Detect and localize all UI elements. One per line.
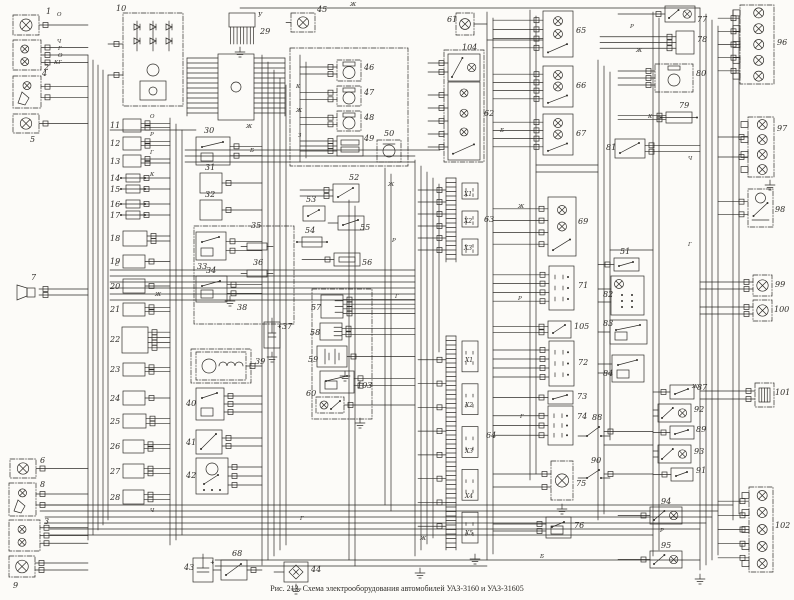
- component-67: [493, 114, 573, 155]
- component-number: 105: [574, 322, 589, 331]
- wire-color-label: Р: [659, 528, 664, 534]
- component-number: 54: [305, 226, 315, 235]
- component-number: 40: [185, 399, 196, 408]
- component-28: [123, 490, 170, 504]
- component-number: 93: [694, 447, 704, 456]
- component-38: [225, 296, 235, 306]
- component-78: [600, 31, 694, 54]
- component-90: [578, 469, 653, 479]
- component-18: [123, 231, 170, 246]
- connector-label: X1: [464, 357, 473, 364]
- component-43: +: [193, 554, 221, 582]
- component-94: [618, 507, 682, 524]
- component-61: [456, 13, 487, 35]
- component-47: [300, 86, 361, 106]
- wire-color-label: КГ: [53, 60, 62, 66]
- wire-color-label: О: [57, 12, 62, 18]
- component-104: [428, 54, 480, 81]
- component-number: 1: [46, 7, 51, 16]
- wire-color-label: Г: [57, 46, 62, 52]
- component-number: 28: [109, 493, 120, 502]
- component-100: [700, 300, 772, 321]
- component-102: [718, 487, 773, 572]
- component-55: [328, 216, 364, 230]
- component-number: 6: [40, 456, 45, 465]
- component-62: [428, 82, 480, 160]
- component-number: 80: [696, 69, 706, 78]
- component-77: [618, 6, 695, 22]
- component-99: [700, 275, 772, 296]
- component-97: [718, 117, 774, 177]
- component-number: 58: [310, 328, 320, 337]
- wire-color-label: Ж: [691, 384, 699, 390]
- wire-color-label: Б: [499, 128, 504, 134]
- component-number: 55: [360, 223, 370, 232]
- component-27: [123, 464, 170, 478]
- component-number: 83: [603, 319, 613, 328]
- component-6: [10, 459, 88, 478]
- component-53: [303, 206, 325, 221]
- connector-label: X2: [464, 402, 473, 409]
- wire-color-label: Б: [249, 148, 254, 154]
- component-29: [187, 13, 285, 120]
- connector-label: X4: [464, 493, 473, 500]
- wire-color-label: Г: [687, 242, 692, 248]
- component-number: 29: [259, 27, 270, 36]
- wire-color-label: О: [58, 53, 63, 59]
- wire-color-label: Ж: [419, 536, 427, 542]
- wiring-diagram: ++ 1245102911121314151617181920212223242…: [0, 0, 794, 600]
- component-2: [13, 40, 88, 70]
- component-number: 74: [577, 412, 587, 421]
- component-57: [321, 295, 415, 318]
- component-number: 100: [774, 305, 789, 314]
- component-5: [13, 114, 88, 133]
- component-number: 76: [574, 521, 584, 530]
- component-number: 72: [578, 358, 588, 367]
- component-44: [274, 562, 308, 582]
- component-number: 64: [486, 431, 496, 440]
- component-number: 39: [255, 357, 265, 366]
- wire-color-label: К: [295, 84, 301, 90]
- component-number: 36: [253, 258, 263, 267]
- connector-label: X1: [463, 191, 472, 198]
- component-24: [123, 391, 170, 405]
- component-number: 97: [777, 124, 788, 133]
- component-19: [123, 255, 170, 268]
- component-number: 95: [661, 541, 671, 550]
- wire-color-label: Р: [391, 238, 396, 244]
- component-68: [221, 560, 262, 580]
- component-number: 99: [775, 280, 785, 289]
- wire-color-label: Г: [394, 294, 399, 300]
- component-74: [493, 406, 573, 445]
- wire-color-label: Б: [539, 554, 544, 560]
- component-65: [493, 11, 573, 57]
- component-42: [196, 458, 262, 494]
- component-number: 32: [205, 190, 215, 199]
- labels-layer: 1245102911121314151617181920212223242526…: [13, 2, 790, 590]
- component-number: 43: [183, 563, 194, 572]
- component-number: 11: [110, 121, 120, 130]
- component-number: 77: [697, 15, 708, 24]
- connector-label: X2: [463, 218, 472, 225]
- component-number: 4: [41, 69, 47, 78]
- wire-color-label: К: [647, 114, 653, 120]
- component-number: 31: [205, 163, 215, 172]
- component-22: [122, 327, 170, 353]
- component-number: 50: [384, 129, 394, 138]
- component-101: [700, 383, 774, 407]
- component-number: 7: [31, 273, 37, 282]
- component-number: 22: [109, 335, 120, 344]
- wire-color-label: Ж: [635, 48, 643, 54]
- component-105: [493, 321, 571, 338]
- component-number: 12: [110, 139, 120, 148]
- component-number: 27: [109, 467, 121, 476]
- wire-harness: [40, 8, 775, 594]
- component-number: 82: [603, 290, 613, 299]
- component-33: [196, 232, 262, 260]
- component-96: [718, 5, 774, 84]
- component-71: [493, 266, 574, 310]
- component-37: +: [264, 318, 282, 348]
- component-number: 8: [40, 480, 45, 489]
- wire-color-label: Ж: [387, 182, 395, 188]
- component-number: 102: [775, 521, 790, 530]
- wire-color-label: Г: [519, 414, 524, 420]
- wire-color-label: Ч: [57, 39, 62, 45]
- wire-color-label: Ч: [150, 508, 155, 514]
- component-number: 81: [606, 143, 616, 152]
- component-21: [123, 303, 170, 316]
- component-9: [9, 556, 88, 577]
- wire-color-label: О: [150, 114, 155, 120]
- component-number: 96: [777, 38, 787, 47]
- component-number: 15: [110, 185, 120, 194]
- component-number: 5: [30, 135, 35, 144]
- component-number: 38: [237, 303, 247, 312]
- component-40: [196, 388, 262, 420]
- component-number: 92: [694, 405, 704, 414]
- component-number: 45: [316, 5, 327, 14]
- component-number: 13: [110, 157, 120, 166]
- component-number: 14: [110, 174, 120, 183]
- component-48: [300, 111, 361, 131]
- wire-color-label: Ч: [688, 156, 693, 162]
- connector-label: X3: [463, 245, 472, 252]
- component-80: [618, 64, 693, 92]
- component-56: [302, 253, 360, 266]
- component-17: [120, 211, 170, 219]
- component-49: [300, 136, 363, 156]
- component-number: 60: [306, 389, 316, 398]
- component-59: [317, 346, 415, 367]
- connector-label: X5: [464, 530, 473, 537]
- component-46: [300, 60, 361, 81]
- component-number: 52: [349, 173, 359, 182]
- wire-color-label: Г: [149, 150, 154, 156]
- component-98: [718, 189, 773, 227]
- component-69: [493, 197, 576, 256]
- wire-color-label: Ж: [154, 292, 162, 298]
- component-88: [578, 426, 653, 437]
- component-number: 26: [109, 442, 120, 451]
- component-number: 44: [310, 565, 321, 574]
- component-number: 88: [592, 413, 602, 422]
- component-number: 79: [679, 101, 689, 110]
- component-number: 30: [204, 126, 214, 135]
- component-45: [286, 13, 315, 32]
- component-number: 3: [44, 517, 49, 526]
- component-32: [200, 200, 262, 220]
- component-25: [123, 414, 170, 428]
- component-14: [120, 174, 170, 182]
- wire-color-label: Ж: [245, 124, 253, 130]
- component-12: [123, 137, 170, 150]
- component-number: 65: [576, 26, 586, 35]
- component-95: [618, 551, 682, 568]
- connector-label: X3: [464, 448, 473, 455]
- component-number: 59: [308, 355, 318, 364]
- component-39: [196, 352, 262, 380]
- component-number: 91: [696, 466, 706, 475]
- component-number: 57: [311, 303, 322, 312]
- page: ++ 1245102911121314151617181920212223242…: [0, 0, 794, 600]
- wire-color-label: Р: [149, 132, 154, 138]
- component-number: 21: [109, 305, 120, 314]
- wire-color-label: Г: [299, 516, 304, 522]
- connector-label: У: [258, 12, 263, 19]
- component-73: [493, 391, 573, 404]
- component-number: 51: [620, 247, 630, 256]
- component-number: 20: [109, 282, 120, 291]
- component-75: [493, 461, 573, 500]
- svg-text:+: +: [210, 560, 215, 566]
- component-number: 24: [109, 394, 120, 403]
- component-number: 16: [110, 200, 120, 209]
- component-number: 94: [661, 497, 671, 506]
- component-58: [320, 323, 415, 340]
- wire-color-label: Ж: [295, 108, 303, 114]
- component-41: [196, 430, 262, 454]
- component-number: 75: [576, 479, 586, 488]
- component-26: [123, 440, 170, 453]
- component-number: 53: [306, 195, 316, 204]
- component-number: 42: [185, 471, 196, 480]
- component-number: 98: [775, 205, 785, 214]
- component-number: 17: [110, 211, 121, 220]
- figure-caption: Рис. 213. Схема электрооборудования авто…: [0, 584, 794, 593]
- component-number: 90: [591, 456, 601, 465]
- wire-color-label: Р: [517, 296, 522, 302]
- component-number: 69: [578, 217, 588, 226]
- component-number: 66: [576, 81, 586, 90]
- component-number: 46: [363, 63, 374, 72]
- component-number: 67: [576, 129, 587, 138]
- component-number: 23: [109, 365, 120, 374]
- component-number: 71: [578, 281, 588, 290]
- component-number: 18: [110, 234, 120, 243]
- component-number: 62: [484, 109, 494, 118]
- component-79: [618, 112, 698, 123]
- wire-color-label: Р: [629, 24, 634, 30]
- component-number: 37: [282, 322, 293, 331]
- component-number: 34: [206, 266, 216, 275]
- component-15: [120, 185, 170, 193]
- component-number: 78: [697, 35, 707, 44]
- component-10: [108, 13, 183, 106]
- component-20: [123, 279, 170, 293]
- component-number: 101: [775, 388, 790, 397]
- component-number: 61: [447, 15, 457, 24]
- wire-color-label: К: [149, 172, 155, 178]
- component-number: 25: [109, 417, 120, 426]
- component-number: 103: [357, 381, 372, 390]
- component-number: 35: [251, 221, 261, 230]
- wire-color-label: Ж: [349, 2, 357, 8]
- wire-color-label: З: [298, 133, 302, 139]
- component-number: 41: [185, 438, 196, 447]
- component-number: 87: [697, 383, 708, 392]
- component-number: 73: [577, 392, 587, 401]
- component-34: [196, 276, 262, 302]
- component-1: [13, 15, 88, 35]
- component-number: 68: [232, 549, 242, 558]
- component-16: [120, 200, 170, 208]
- component-60: [316, 397, 415, 413]
- component-66: [493, 66, 573, 107]
- component-7: [17, 285, 88, 300]
- component-number: 49: [363, 134, 374, 143]
- component-number: 47: [363, 88, 375, 97]
- component-number: 10: [116, 4, 126, 13]
- component-54: [296, 237, 328, 247]
- component-72: [493, 341, 574, 386]
- component-50: [377, 140, 401, 162]
- component-13: [123, 155, 170, 167]
- component-23: [123, 363, 170, 376]
- component-number: 63: [484, 215, 494, 224]
- component-number: 104: [462, 43, 477, 52]
- component-number: 89: [696, 425, 706, 434]
- component-number: 84: [603, 369, 613, 378]
- component-number: 56: [362, 258, 372, 267]
- component-number: 48: [363, 113, 374, 122]
- wire-color-label: Ж: [517, 204, 525, 210]
- component-4: [13, 76, 88, 108]
